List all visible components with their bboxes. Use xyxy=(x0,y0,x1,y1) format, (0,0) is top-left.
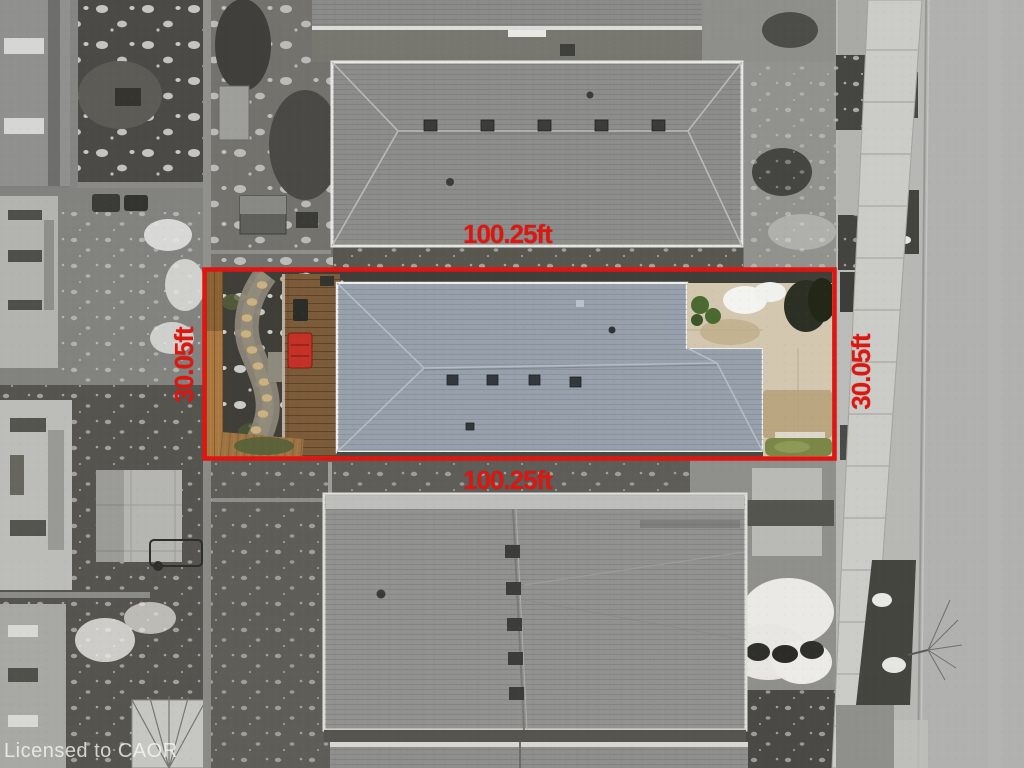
dimension-label-frontage-top: 100.25ft xyxy=(463,221,552,247)
license-watermark: Licensed to CAOR xyxy=(4,740,178,763)
aerial-photo: 100.25ft 100.25ft 30.05ft 30.05ft Licens… xyxy=(0,0,1024,768)
dimension-label-depth-right: 30.05ft xyxy=(848,334,874,409)
dimension-label-depth-left: 30.05ft xyxy=(171,327,197,402)
dimension-label-frontage-bottom: 100.25ft xyxy=(463,467,552,493)
